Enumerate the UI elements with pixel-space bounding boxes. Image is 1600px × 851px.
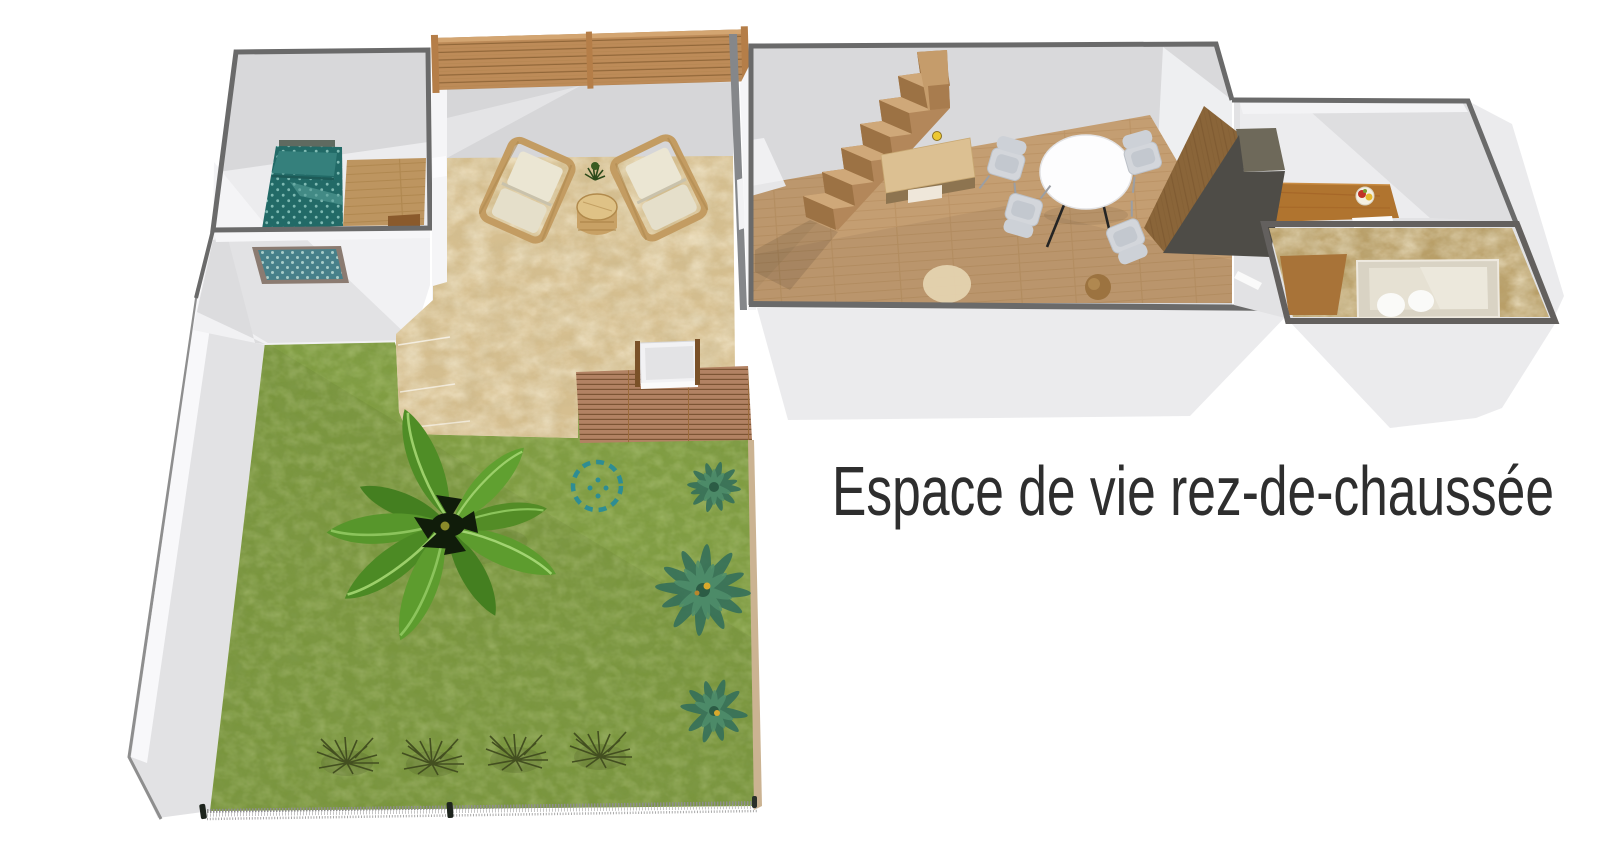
svg-text:Espace de vie rez-de-chaussée: Espace de vie rez-de-chaussée [832,452,1554,530]
